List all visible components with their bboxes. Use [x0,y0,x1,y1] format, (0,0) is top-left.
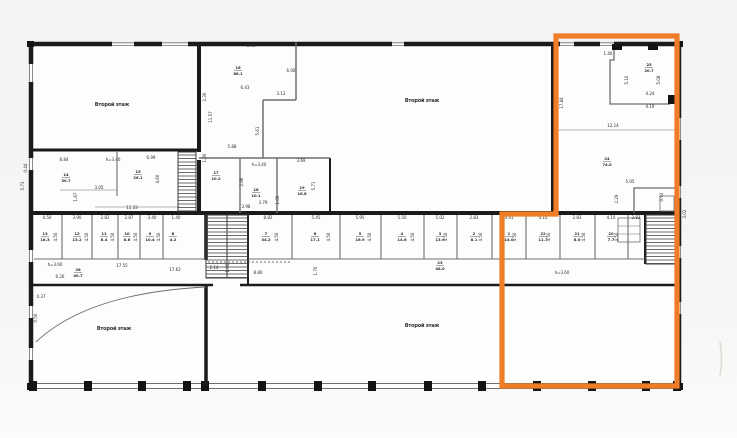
dimension-label: 4.24 [646,91,655,96]
dimension-label: 4.50 [274,232,279,241]
dimension-label: 8.84 [60,157,69,162]
dimension-label: 4.50 [410,232,415,241]
room-number: 17 [213,170,219,175]
room-area: 34.2 [261,237,271,242]
dimension-label: 6.26 [56,274,65,279]
room-area: 13.9 [435,237,445,242]
room-number: 16 [235,65,241,70]
dimension-label: 3.13 [277,91,286,96]
dimension-label: 1.40 [604,51,613,56]
room-area: 10.1 [251,193,261,198]
wall-pier [84,381,92,391]
room-number: 2 [473,231,476,236]
dimension-label: 11.57 [208,111,213,123]
room-number: 11 [101,231,107,236]
wall-pier [314,381,322,391]
dimension-label: 5.02 [436,215,445,220]
dimension-label: 8.82 [264,215,273,220]
dimension-label: 5.61 [255,126,260,135]
dimension-label: 2.30 [202,92,207,101]
dimension-label: 2.83 [632,215,641,220]
dimension-label: 6.99 [147,155,156,160]
wall-pier [183,381,191,391]
dimension-label: 0.92 [659,192,664,201]
dimension-label: 4.50 [53,232,58,241]
room-number: 4 [401,231,404,236]
wall-pier [368,381,376,391]
dimension-label: 5.08 [656,75,661,84]
dimension-label: 17.62 [169,267,181,272]
wall-pier [258,381,266,391]
floor-plan-canvas: 0.445.738.84h=3.406.994.603.051.6711.336… [0,0,737,438]
dimension-label: 3.79 [259,200,268,205]
floor-label: Второй этаж [97,325,132,332]
dimension-label: 4.50 [43,215,52,220]
dimension-label: 12.14 [607,123,619,128]
room-area: 11.7 [538,237,548,242]
room-area: 16.8 [297,191,307,196]
room-number: 24 [604,156,610,161]
dimension-label: 5.73 [20,181,25,190]
dimension-label: 5.95 [356,215,365,220]
room-area: 20.7 [644,68,654,73]
room-number: 13 [42,231,48,236]
room-number: 21 [574,231,580,236]
room-area: 48.0 [435,266,445,271]
dimension-label: 1.15 [225,263,230,272]
floor-label: Второй этаж [95,101,130,108]
dimension-label: 2.82 [101,215,110,220]
dimension-label: 2.87 [125,215,134,220]
dimension-label: 1.30 [202,153,207,162]
room-number: 26 [75,267,81,272]
dimension-label: h=3.40 [252,162,267,167]
dimension-label: 5.71 [311,181,316,190]
dimension-label: 4.50 [84,232,89,241]
dimension-label: 4.50 [156,232,161,241]
dimension-label: 8.80 [254,270,263,275]
room-area: 68.1 [233,71,243,76]
room-number: 19 [299,185,305,190]
dimension-label: 1.70 [313,266,318,275]
wall-pier [424,381,432,391]
room-area: 8.1 [471,237,478,242]
room-number: 15 [135,169,141,174]
dimension-label: 17.55 [116,263,128,268]
room-area: 7.7 [608,237,615,242]
room-area: 10.4 [145,237,155,242]
room-area: 8.4 [101,237,108,242]
room-area: 16.9 [355,237,365,242]
room-area: 14.6 [397,237,407,242]
dimension-label: 3.02 [682,209,687,218]
room-number: 8 [172,231,175,236]
dimension-label: 2.29 [614,194,619,203]
dimension-label: 5.50 [398,215,407,220]
room-area: 13.2 [72,237,82,242]
room-area: 17.1 [310,237,320,242]
dimension-label: 4.10 [607,215,616,220]
room-area: 74.0 [602,162,612,167]
wall-pier [138,381,146,391]
room-area: 30.7 [61,178,71,183]
dimension-label: 4.50 [581,232,586,241]
dimension-label: 3.05 [95,185,104,190]
dimension-label: 4.50 [110,232,115,241]
floor-label: Второй этаж [405,97,440,104]
dimension-label: 0.37 [37,294,46,299]
dimension-label: 3.40 [148,215,157,220]
room-number: 20 [608,231,614,236]
room-number: 3 [439,231,442,236]
room-area: 8.0 [574,237,581,242]
dimension-label: 1.67 [73,192,78,201]
dimension-label: 4.50 [133,232,138,241]
room-number: 14 [63,172,69,177]
dimension-label: 4.50 [478,232,483,241]
dimension-label: 6.43 [241,85,250,90]
room-area: 14.0 [504,237,514,242]
dimension-label: 0.50 [33,313,38,322]
dimension-label: 4.19 [646,104,655,109]
dimension-label: 2.83 [470,215,479,220]
dimension-label: h=3.60 [48,262,63,267]
room-number: 23 [437,260,443,265]
dimension-label: 17.84 [559,97,564,109]
dimension-label: 6.00 [287,68,296,73]
room-number: 12 [74,231,80,236]
dimension-label: 3.90 [73,215,82,220]
room-number: 10 [124,231,130,236]
dimension-label: 3.69 [297,158,306,163]
room-number: 9 [149,231,152,236]
room-number: 7 [265,231,268,236]
dimension-label: h=3.60 [555,270,570,275]
dimension-label: 2.86 [239,177,244,186]
dimension-label: 0.44 [23,163,28,172]
room-area: 18.3 [40,237,50,242]
room-number: 22 [540,231,546,236]
room-area: 26.1 [133,175,143,180]
scanned-page: 0.445.738.84h=3.406.994.603.051.6711.336… [0,0,737,438]
room-number: 25 [646,62,652,67]
dimension-label: 5.05 [626,179,635,184]
room-area: 40.7 [73,273,83,278]
dimension-label: 1.00 [275,195,280,204]
dimension-label: 1.40 [172,215,181,220]
floor-label: Второй этаж [405,322,440,329]
room-area: 10.2 [211,176,221,181]
dimension-label: 5.88 [228,144,237,149]
room-number: 5 [359,231,362,236]
dimension-label: 4.60 [155,174,160,183]
dimension-label: h=3.40 [106,157,121,162]
dimension-label: 6.40 [247,43,256,48]
wall-pier [478,381,486,391]
dimension-label: 2.83 [573,215,582,220]
dimension-label: 4.50 [367,232,372,241]
room-number: 1 [508,231,511,236]
room-number: 18 [253,187,259,192]
dimension-label: 3.98 [242,204,251,209]
scan-artifact-line [720,342,722,376]
room-number: 6 [314,231,317,236]
dimension-label: 5.45 [312,215,321,220]
room-area: 8.6 [124,237,131,242]
dimension-label: 4.50 [326,232,331,241]
dimension-label: 5.10 [624,75,629,84]
dimension-label: 11.33 [126,205,138,210]
dimension-label: 4.50 [614,232,619,241]
room-area: 4.2 [170,237,177,242]
dimension-label: 2.14 [210,265,219,270]
